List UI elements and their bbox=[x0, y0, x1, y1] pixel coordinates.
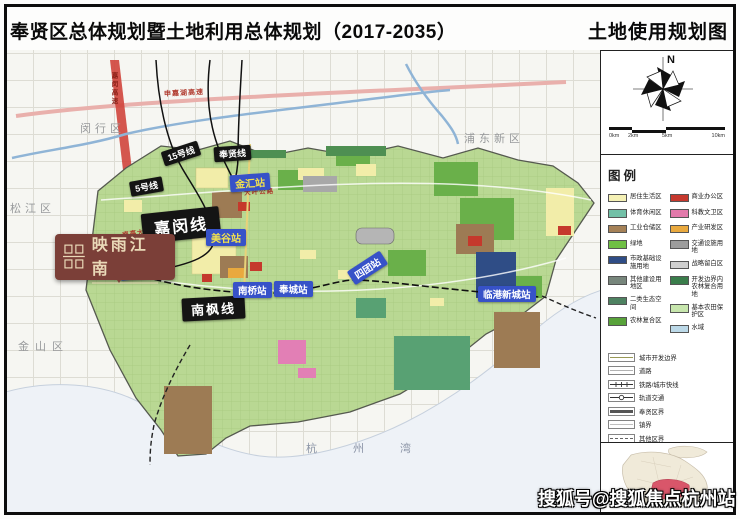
region-label-pudong: 浦东新区 bbox=[464, 130, 524, 146]
logo-name: 映雨江南 bbox=[92, 231, 167, 279]
legend-swatch bbox=[608, 209, 627, 218]
legend-line-item: 城市开发边界 bbox=[608, 353, 726, 362]
legend-line-label: 轨道交通 bbox=[639, 393, 664, 402]
road-label-jiamin: 嘉闵高速 bbox=[108, 72, 118, 106]
bay-label-hangzhouwan: 杭州湾 bbox=[306, 440, 447, 456]
logo-seal-icon bbox=[63, 243, 85, 271]
legend-line-label: 道路 bbox=[639, 366, 652, 375]
legend-item: 工业仓储区 bbox=[608, 224, 665, 234]
legend-label: 其他建设用地区 bbox=[630, 276, 665, 291]
legend-section: 图例 居住生活区 体育休闲区 工业仓储区 绿地 市政基础设施用地 其他建设用地区… bbox=[601, 155, 733, 443]
legend-item: 战略留白区 bbox=[670, 260, 727, 270]
legend-panel: N 0km 2km 5km 10km 图例 居住生活区 体育休闲区 工业仓储区 bbox=[600, 50, 734, 513]
legend-swatch bbox=[670, 240, 689, 249]
symbol-metro bbox=[608, 393, 635, 402]
legend-line-label: 奉贤区界 bbox=[639, 407, 664, 416]
symbol-district-boundary bbox=[608, 407, 635, 416]
station-tag-fengcheng: 奉城站 bbox=[274, 281, 313, 297]
legend-item: 其他建设用地区 bbox=[608, 276, 665, 291]
station-tag-meigu: 美谷站 bbox=[206, 229, 246, 246]
watermark-text: 搜狐号@搜狐焦点杭州站 bbox=[538, 485, 736, 511]
legend-label: 绿地 bbox=[630, 240, 643, 248]
logo-subtext-strip bbox=[92, 282, 158, 284]
legend-item: 科教文卫区 bbox=[670, 209, 727, 219]
header: 奉贤区总体规划暨土地利用总体规划（2017-2035） 土地使用规划图 bbox=[10, 12, 728, 48]
map-area: 闵行区 松江区 浦东新区 金山区 杭州湾 申嘉湖高速 嘉闵高速 大叶公路 南亭大… bbox=[6, 50, 600, 513]
legend-swatch bbox=[608, 276, 627, 285]
symbol-road bbox=[608, 366, 635, 375]
scale-tick-5: 5km bbox=[662, 133, 672, 139]
legend-line-item: 铁路/城市快线 bbox=[608, 380, 726, 389]
scale-tick-2: 2km bbox=[628, 133, 638, 139]
legend-label: 交通设施用地 bbox=[692, 240, 727, 255]
station-tag-jinhui: 金汇站 bbox=[229, 173, 270, 193]
legend-item: 居住生活区 bbox=[608, 193, 665, 203]
legend-line-label: 城市开发边界 bbox=[639, 353, 677, 362]
legend-swatch bbox=[608, 256, 627, 265]
legend-line-label: 镇界 bbox=[639, 420, 652, 429]
legend-label: 商业办公区 bbox=[692, 193, 723, 201]
legend-label: 科教文卫区 bbox=[692, 209, 723, 217]
legend-swatch bbox=[670, 209, 689, 218]
legend-label: 开发边界内农林复合用地 bbox=[692, 276, 727, 299]
legend-item: 基本农田保护区 bbox=[670, 304, 727, 319]
legend-swatch bbox=[670, 225, 689, 234]
legend-line-item: 轨道交通 bbox=[608, 393, 726, 402]
legend-label: 体育休闲区 bbox=[630, 209, 661, 217]
legend-item: 开发边界内农林复合用地 bbox=[670, 276, 727, 299]
legend-item: 水域 bbox=[670, 324, 727, 334]
map-sheet-title: 土地使用规划图 bbox=[588, 17, 728, 44]
legend-line-label: 铁路/城市快线 bbox=[639, 380, 679, 389]
scale-tick-10: 10km bbox=[712, 133, 725, 139]
legend-line-item: 奉贤区界 bbox=[608, 407, 726, 416]
legend-item: 商业办公区 bbox=[670, 193, 727, 203]
compass-north-label: N bbox=[667, 54, 675, 66]
scale-tick-0: 0km bbox=[609, 133, 619, 139]
legend-column-right: 商业办公区 科教文卫区 产业研发区 交通设施用地 战略留白区 开发边界内农林复合… bbox=[670, 193, 727, 340]
scale-bar: 0km 2km 5km 10km bbox=[609, 127, 725, 141]
legend-swatch bbox=[608, 297, 627, 306]
legend-label: 水域 bbox=[692, 324, 705, 332]
legend-swatch bbox=[608, 317, 627, 326]
legend-swatch bbox=[608, 240, 627, 249]
compass-rose-icon: N bbox=[601, 51, 733, 123]
legend-line-item: 道路 bbox=[608, 366, 726, 375]
shenjiahu-expressway-line bbox=[16, 82, 566, 116]
legend-label: 二类生态空间 bbox=[630, 296, 665, 311]
station-tag-nanqiao: 南桥站 bbox=[233, 282, 272, 298]
river-branch-line bbox=[406, 64, 458, 144]
region-label-minhang: 闵行区 bbox=[80, 120, 125, 136]
legend-item: 产业研发区 bbox=[670, 224, 727, 234]
planning-map-page: 奉贤区总体规划暨土地利用总体规划（2017-2035） 土地使用规划图 bbox=[0, 0, 740, 519]
region-label-jinshan: 金山区 bbox=[18, 338, 69, 354]
line-tag-nanfeng: 南枫线 bbox=[181, 295, 245, 321]
legend-item: 农林复合区 bbox=[608, 317, 665, 327]
legend-item: 交通设施用地 bbox=[670, 240, 727, 255]
legend-label: 市政基础设施用地 bbox=[630, 255, 665, 270]
legend-title: 图例 bbox=[608, 165, 726, 184]
legend-swatch bbox=[608, 225, 627, 234]
legend-label: 工业仓储区 bbox=[630, 224, 661, 232]
legend-label: 居住生活区 bbox=[630, 193, 661, 201]
symbol-town-boundary bbox=[608, 420, 635, 429]
legend-item: 绿地 bbox=[608, 240, 665, 250]
developer-logo-plaque: 映雨江南 bbox=[55, 234, 175, 280]
legend-swatch bbox=[670, 304, 689, 313]
region-label-songjiang: 松江区 bbox=[10, 200, 55, 216]
line-tag-fengxian: 奉贤线 bbox=[214, 145, 252, 163]
symbol-urban-boundary bbox=[608, 353, 635, 362]
legend-label: 战略留白区 bbox=[692, 260, 723, 268]
legend-item: 市政基础设施用地 bbox=[608, 255, 665, 270]
legend-line-items: 城市开发边界 道路 铁路/城市快线 轨道交通 奉贤区界 bbox=[608, 353, 726, 443]
legend-label: 产业研发区 bbox=[692, 224, 723, 232]
legend-swatch bbox=[670, 261, 689, 270]
road-label-shenjiahu: 申嘉湖高速 bbox=[164, 87, 204, 99]
legend-swatch bbox=[608, 194, 627, 203]
symbol-railway bbox=[608, 380, 635, 389]
legend-swatch bbox=[670, 194, 689, 203]
station-tag-lingang: 临港新城站 bbox=[478, 286, 536, 302]
legend-label: 基本农田保护区 bbox=[692, 304, 727, 319]
legend-item: 体育休闲区 bbox=[608, 209, 665, 219]
legend-item: 二类生态空间 bbox=[608, 296, 665, 311]
page-title: 奉贤区总体规划暨土地利用总体规划（2017-2035） bbox=[10, 17, 456, 44]
legend-label: 农林复合区 bbox=[630, 317, 661, 325]
legend-swatch bbox=[670, 276, 689, 285]
legend-swatch bbox=[670, 325, 689, 334]
legend-column-left: 居住生活区 体育休闲区 工业仓储区 绿地 市政基础设施用地 其他建设用地区 二类… bbox=[608, 193, 665, 340]
compass-section: N 0km 2km 5km 10km bbox=[601, 51, 733, 155]
legend-line-item: 镇界 bbox=[608, 420, 726, 429]
